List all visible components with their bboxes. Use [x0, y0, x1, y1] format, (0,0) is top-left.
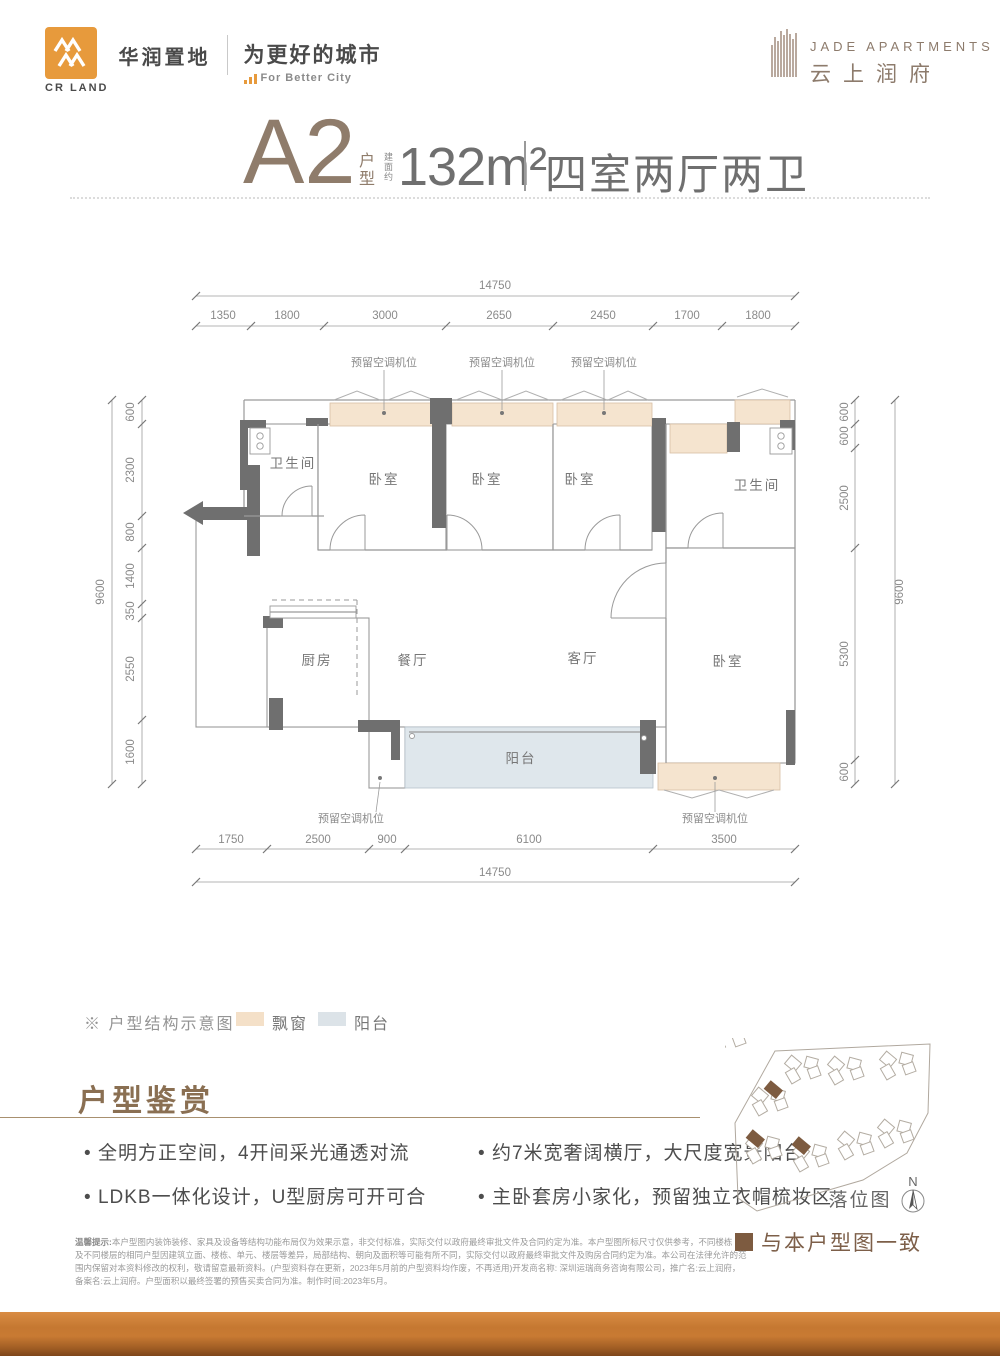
- features-rule: [0, 1117, 700, 1118]
- legend-balcony-label: 阳台: [354, 1010, 390, 1034]
- svg-text:餐厅: 餐厅: [398, 653, 429, 668]
- svg-text:1800: 1800: [274, 310, 300, 322]
- svg-text:350: 350: [125, 601, 137, 620]
- features-heading: 户型鉴赏: [78, 1076, 214, 1120]
- unit-suffix: 户型: [352, 152, 376, 188]
- svg-text:900: 900: [377, 834, 396, 846]
- svg-text:1400: 1400: [125, 563, 137, 589]
- svg-text:厨房: 厨房: [302, 653, 333, 668]
- svg-text:预留空调机位: 预留空调机位: [469, 355, 535, 369]
- slogan-cn-text: 为更好的城市: [244, 39, 382, 69]
- bedroom3-zone: [553, 424, 652, 550]
- svg-text:600: 600: [839, 402, 851, 421]
- area-prefix: 建面约: [382, 152, 395, 182]
- disclaimer-line: 备案名:云上润府。户型面积以最终签署的预售买卖合同为准。制作时间:2023年5月…: [75, 1275, 747, 1288]
- slogan-en-text: For Better City: [261, 72, 352, 84]
- svg-text:2300: 2300: [125, 457, 137, 483]
- equalizer-bars-icon: [244, 74, 257, 84]
- svg-text:卧室: 卧室: [565, 471, 596, 487]
- svg-text:卧室: 卧室: [713, 653, 744, 669]
- entry-arrow-icon: [183, 501, 203, 525]
- legend-note: ※ 户型结构示意图: [84, 1010, 234, 1034]
- svg-text:2500: 2500: [839, 485, 851, 511]
- site-legend-label: 与本户型图一致: [761, 1227, 922, 1257]
- disclaimer: 温馨提示:本户型图内装饰装修、家具及设备等结构功能布局仅为效果示意，非交付标准，…: [75, 1236, 747, 1288]
- title-divider: [524, 141, 526, 191]
- features-col1: 全明方正空间，4开间采光通透对流 LDKB一体化设计，U型厨房可开可合: [84, 1138, 426, 1226]
- disclaimer-label: 温馨提示:: [75, 1237, 112, 1247]
- svg-text:2650: 2650: [486, 310, 512, 322]
- feature-item: 全明方正空间，4开间采光通透对流: [84, 1138, 426, 1165]
- north-compass-icon: N: [902, 1174, 924, 1212]
- floor-plan: 14750 1350 1800 3000 2650 2450 1700 1800…: [0, 270, 1000, 920]
- svg-text:600: 600: [125, 402, 137, 421]
- brochure-page: CR LAND 华润置地 为更好的城市 For Better City: [0, 0, 1000, 1356]
- site-plan-label: 落位图: [828, 1189, 891, 1211]
- svg-text:2450: 2450: [590, 310, 616, 322]
- logo-cn-text: 华润置地: [119, 41, 211, 94]
- svg-text:N: N: [908, 1174, 917, 1189]
- svg-text:1800: 1800: [745, 310, 771, 322]
- svg-text:预留空调机位: 预留空调机位: [318, 811, 384, 825]
- svg-text:600: 600: [839, 426, 851, 445]
- legend-balcony-swatch: [318, 1012, 346, 1026]
- cr-land-logo-icon: [45, 27, 97, 79]
- header-divider: [227, 35, 228, 75]
- header-right: JADE APARTMENTS 云上润府: [770, 25, 994, 88]
- unit-code: A2: [243, 106, 356, 198]
- site-buildings: [746, 1051, 916, 1172]
- legend-bay-label: 飘窗: [272, 1010, 308, 1034]
- site-legend: 与本户型图一致: [735, 1227, 922, 1257]
- svg-text:卫生间: 卫生间: [734, 478, 781, 493]
- svg-text:卫生间: 卫生间: [270, 456, 317, 471]
- svg-text:卧室: 卧室: [472, 471, 503, 487]
- svg-text:800: 800: [125, 522, 137, 541]
- svg-text:3000: 3000: [372, 310, 398, 322]
- svg-text:9600: 9600: [894, 579, 906, 605]
- svg-text:9600: 9600: [95, 579, 107, 605]
- svg-text:600: 600: [839, 762, 851, 781]
- svg-text:客厅: 客厅: [568, 650, 599, 666]
- logo-en-text: CR LAND: [45, 82, 109, 94]
- bedroom1-zone: [318, 424, 446, 550]
- disclaimer-line: 本户型图内装饰装修、家具及设备等结构功能布局仅为效果示意，非交付标准，实际交付以…: [112, 1237, 733, 1247]
- title-underline: [70, 197, 930, 199]
- disclaimer-line: 围内保留对本资料修改的权利，敬请留意最新资料。(户型资料存在更新，2023年5月…: [75, 1262, 747, 1275]
- bedroom2-zone: [446, 424, 553, 550]
- svg-text:6100: 6100: [516, 834, 542, 846]
- site-plan: 落位图 N: [725, 1038, 975, 1253]
- svg-text:预留空调机位: 预留空调机位: [682, 811, 748, 825]
- svg-text:预留空调机位: 预留空调机位: [351, 355, 417, 369]
- svg-text:1700: 1700: [674, 310, 700, 322]
- cr-land-logo: CR LAND: [45, 27, 109, 94]
- svg-text:1750: 1750: [218, 834, 244, 846]
- svg-text:1350: 1350: [210, 310, 236, 322]
- svg-text:2500: 2500: [305, 834, 331, 846]
- svg-text:1600: 1600: [125, 739, 137, 765]
- project-name-en: JADE APARTMENTS: [810, 39, 994, 54]
- svg-text:2550: 2550: [125, 656, 137, 682]
- svg-text:阳台: 阳台: [506, 751, 537, 766]
- svg-text:14750: 14750: [479, 280, 511, 292]
- jade-building-icon: [770, 25, 798, 79]
- svg-text:5300: 5300: [839, 641, 851, 667]
- footer-bar: [0, 1312, 1000, 1356]
- project-name-cn: 云上润府: [810, 58, 994, 88]
- svg-text:14750: 14750: [479, 867, 511, 879]
- svg-text:预留空调机位: 预留空调机位: [571, 355, 637, 369]
- svg-text:卧室: 卧室: [369, 471, 400, 487]
- feature-item: LDKB一体化设计，U型厨房可开可合: [84, 1182, 426, 1209]
- legend-bay-swatch: [236, 1012, 264, 1026]
- rooms-summary: 四室两厅两卫: [545, 141, 809, 202]
- disclaimer-line: 及不同楼层的相同户型因建筑立面、楼栋、单元、楼层等差异，局部结构、朝向及面积等可…: [75, 1249, 747, 1262]
- header-left: CR LAND 华润置地 为更好的城市 For Better City: [45, 27, 382, 94]
- svg-text:3500: 3500: [711, 834, 737, 846]
